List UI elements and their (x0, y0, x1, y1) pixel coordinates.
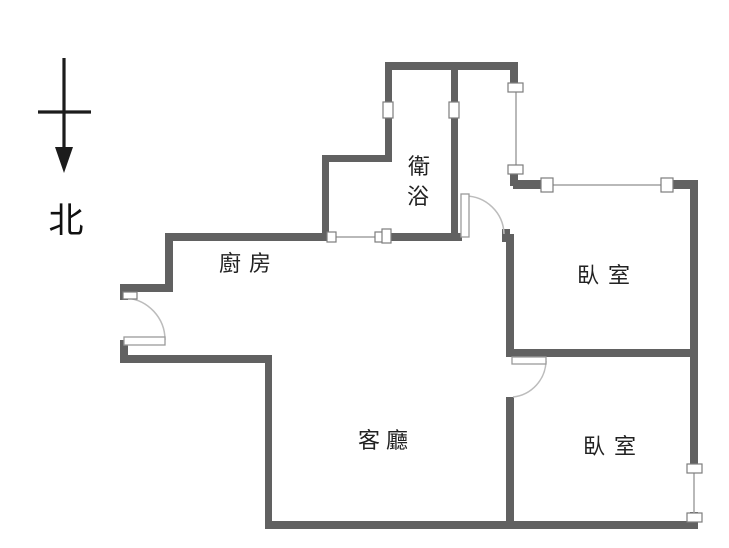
wall-segment (322, 155, 390, 162)
wall-segment (506, 397, 514, 529)
wall-vent (449, 102, 459, 118)
floor-plan-page: 北 廚房 衛 浴 臥室 臥室 客廳 (0, 0, 729, 548)
wall-segment (690, 180, 698, 466)
wall-segment (165, 233, 326, 241)
room-label-living: 客廳 (358, 430, 414, 452)
wall-segment (165, 233, 173, 292)
wall-segment (506, 349, 698, 357)
window-end-cap (661, 178, 673, 192)
window-end-cap (687, 464, 702, 473)
room-label-kitchen: 廚房 (219, 253, 279, 275)
wall-segment (265, 355, 272, 529)
door-leaf (124, 337, 165, 345)
window-end-cap (687, 513, 702, 522)
window-end-cap (541, 178, 553, 192)
room-label-bathroom-line2: 浴 (407, 186, 429, 208)
door-leaf (512, 357, 546, 364)
window-end-cap (508, 83, 523, 92)
north-arrow-head-icon (55, 147, 73, 173)
wall-segment (451, 62, 458, 241)
door-swing-arc (126, 298, 165, 340)
wall-vent (123, 292, 137, 299)
wall-segment (265, 521, 698, 529)
room-label-bathroom-line1: 衛 (408, 156, 430, 178)
wall-segment (506, 234, 514, 357)
window-end-cap (508, 165, 523, 174)
wall-segment (388, 233, 462, 241)
window-end-cap (327, 232, 336, 242)
wall-segment (322, 155, 329, 241)
window-end-cap (382, 229, 391, 243)
room-label-bedroom-top: 臥室 (577, 265, 639, 287)
wall-vent (383, 102, 393, 118)
wall-segment (120, 355, 272, 363)
door-leaf (461, 194, 469, 237)
door-swing-arc (513, 361, 546, 397)
north-label: 北 (48, 193, 83, 244)
room-label-bedroom-bottom: 臥室 (583, 436, 645, 458)
door-swing-arc (465, 196, 504, 234)
